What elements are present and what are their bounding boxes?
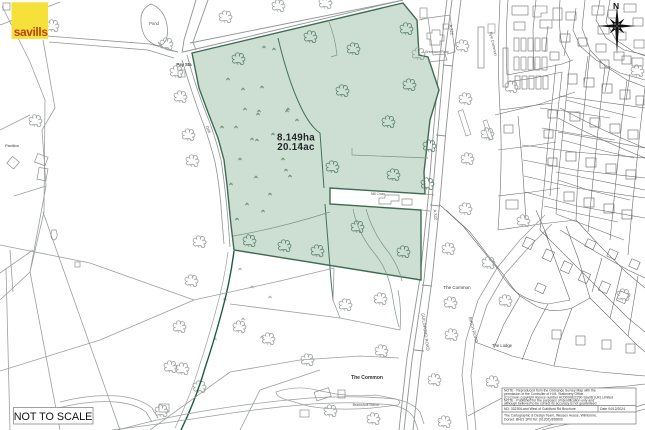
svg-text:Greenacre Place: Greenacre Place [425,50,449,54]
svg-text:Pond: Pond [149,21,159,26]
svg-text:The Lodge: The Lodge [492,343,513,348]
svg-text:Bramshott Manor: Bramshott Manor [353,403,381,407]
svg-text:although believed to be correc: although believed to be correct its accu… [504,402,597,406]
svg-text:Pay Sta: Pay Sta [176,62,192,67]
svg-text:Dorset. BH21 1PB Tel: (01202): Dorset. BH21 1PB Tel: (01202) 856800 [504,418,563,422]
svg-text:Pavilion: Pavilion [5,143,19,148]
svg-text:20.14ac: 20.14ac [277,142,315,153]
svg-text:The Common: The Common [351,375,383,381]
svg-text:ND: 33230/Land West of Guildfo: ND: 33230/Land West of Guildford Rd Broc… [504,407,576,411]
svg-text:Date 04/12/2024: Date 04/12/2024 [600,407,625,411]
svg-text:Mill Cross: Mill Cross [371,192,385,196]
svg-text:N: N [613,1,619,11]
svg-text:NOT TO SCALE: NOT TO SCALE [14,411,93,423]
svg-text:The Common: The Common [443,285,471,290]
svg-text:savills: savills [14,25,49,39]
